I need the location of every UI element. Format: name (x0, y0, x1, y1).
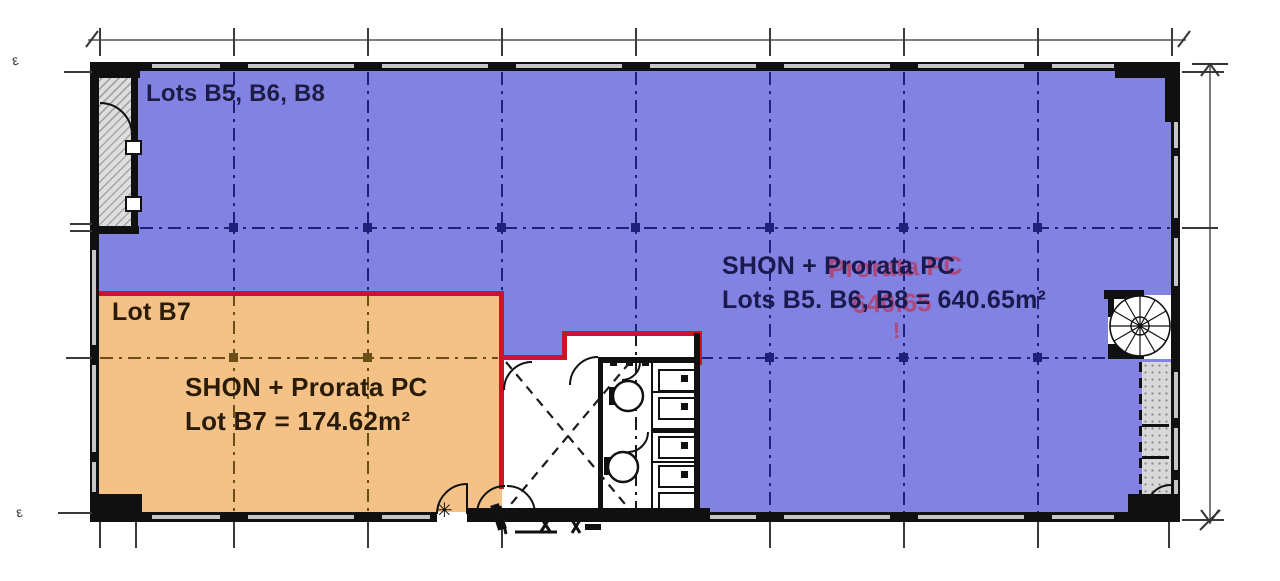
red-annotation-mark: ! (893, 318, 901, 344)
star-marker-icon: ✳ (436, 498, 453, 523)
floor-plan-canvas: Prorata PC 640.65 ! Lots B5, B6, B8 SHON… (0, 0, 1280, 581)
orange-zone-name-label: Lot B7 (112, 298, 191, 327)
blue-zone-name-label: Lots B5, B6, B8 (146, 80, 325, 108)
orange-zone-area-line1: SHON + Prorata PC (185, 372, 428, 403)
blue-zone-area-line2: Lots B5. B6, B8 = 640.65m² (722, 286, 1046, 315)
blue-zone-area-line1: SHON + Prorata PC (722, 252, 955, 281)
datum-mark-bottom-icon: ε (14, 504, 23, 521)
orange-zone-area-line2: Lot B7 = 174.62m² (185, 406, 410, 437)
core-notch (565, 333, 697, 359)
datum-mark-top-icon: ε (10, 52, 19, 69)
